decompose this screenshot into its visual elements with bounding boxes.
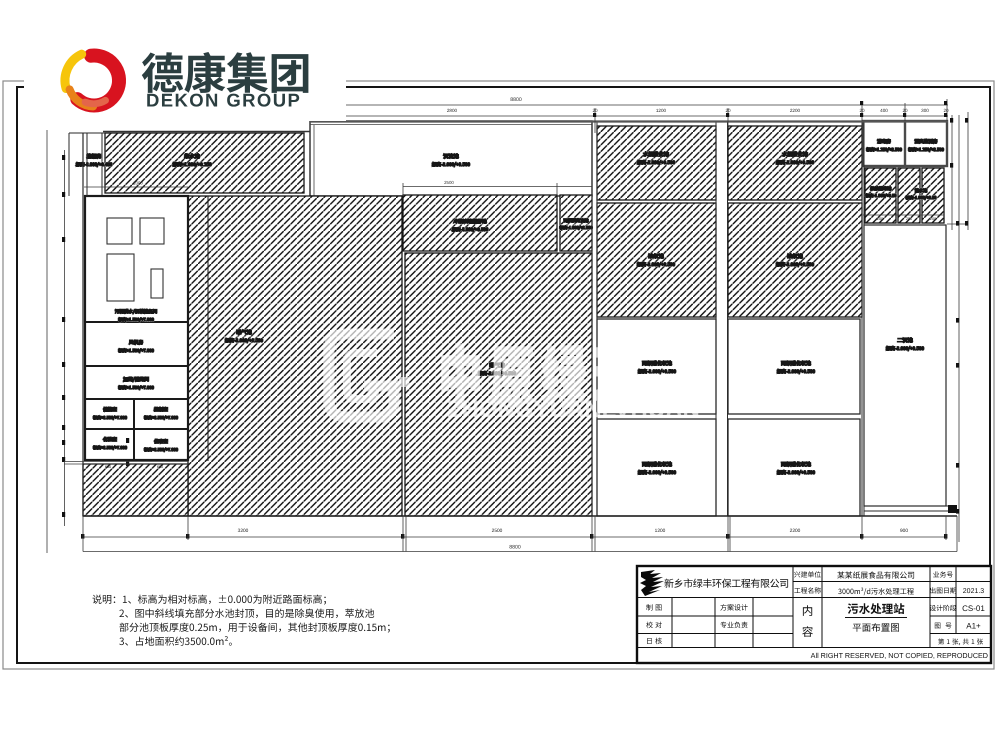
svg-text:300: 300 xyxy=(921,108,929,113)
svg-text:2800: 2800 xyxy=(447,108,458,113)
svg-text:ZHONGYUANLVHUAN: ZHONGYUANLVHUAN xyxy=(447,396,700,423)
svg-text:1000: 1000 xyxy=(133,181,143,186)
svg-text:2021.3: 2021.3 xyxy=(963,588,985,595)
svg-text:400: 400 xyxy=(880,108,888,113)
svg-text:200: 200 xyxy=(877,217,883,221)
svg-text:900: 900 xyxy=(900,528,908,534)
svg-text:600: 600 xyxy=(105,465,111,469)
svg-text:DEKON GROUP: DEKON GROUP xyxy=(146,90,301,111)
svg-text:1200: 1200 xyxy=(656,108,667,113)
svg-text:20: 20 xyxy=(943,108,949,113)
svg-text:8800: 8800 xyxy=(510,97,522,103)
svg-text:2200: 2200 xyxy=(790,108,801,113)
svg-text:All RIGHT RESERVED, NOT CO: All RIGHT RESERVED, NOT COPIED, REPRODUC… xyxy=(811,651,988,660)
svg-text:1200: 1200 xyxy=(655,528,666,534)
svg-text:200: 200 xyxy=(906,217,912,221)
svg-text:A1+: A1+ xyxy=(966,622,981,631)
svg-text:600: 600 xyxy=(157,465,163,469)
svg-text:3200: 3200 xyxy=(238,528,249,534)
svg-text:2500: 2500 xyxy=(492,528,503,534)
svg-text:200: 200 xyxy=(930,217,936,221)
svg-text:2200: 2200 xyxy=(790,528,801,534)
svg-text:2500: 2500 xyxy=(444,180,454,185)
svg-text:8800: 8800 xyxy=(509,545,521,551)
svg-text:CS-01: CS-01 xyxy=(962,604,985,613)
